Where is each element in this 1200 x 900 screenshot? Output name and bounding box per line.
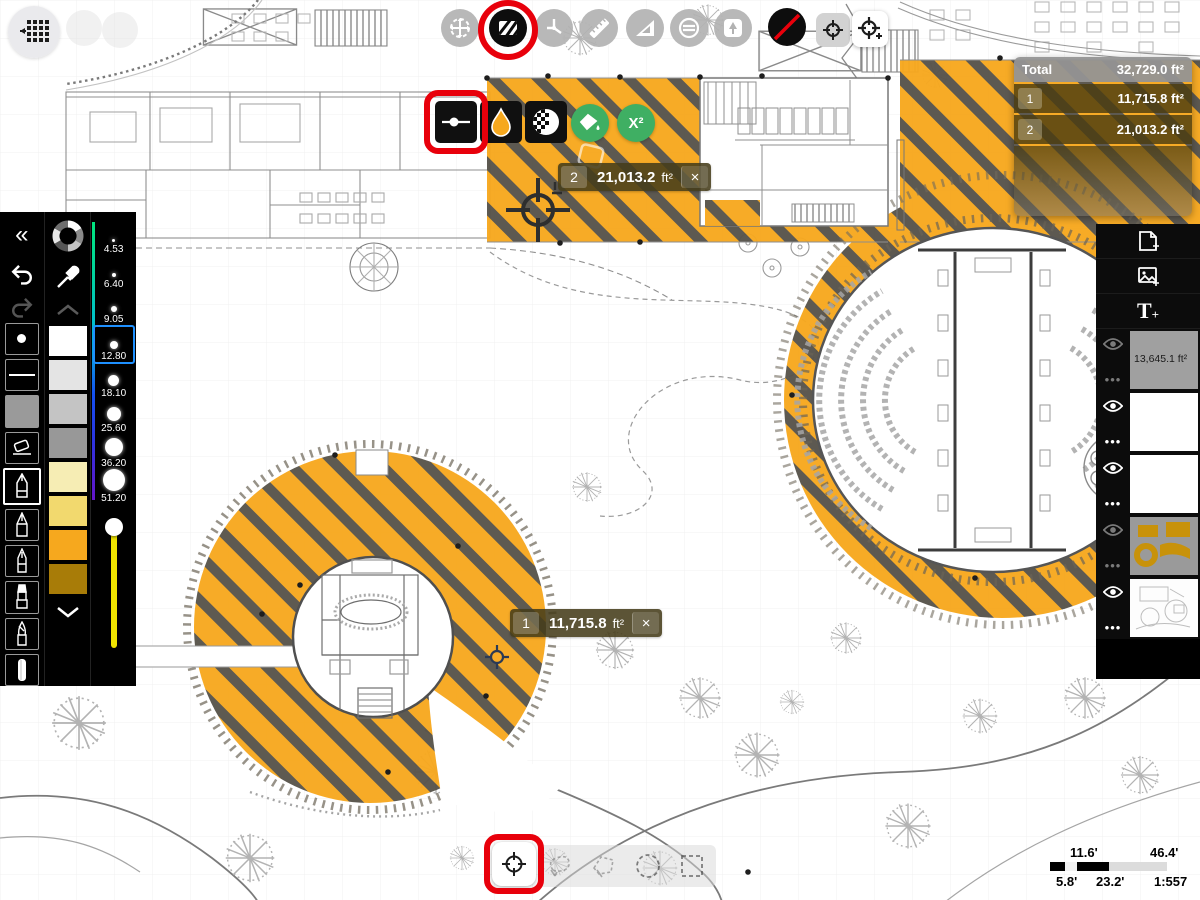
color-swatch-amber[interactable] [49, 530, 87, 560]
circle-select-button[interactable] [626, 845, 670, 887]
scale-label-bottom-mid: 23.2' [1096, 874, 1124, 889]
brush-panel: « [0, 212, 136, 686]
layer-1-options-icon[interactable]: ••• [1105, 377, 1122, 383]
tool-eraser[interactable] [5, 432, 39, 464]
totals-row-1[interactable]: 1 11,715.8 ft² [1014, 84, 1192, 113]
layers-panel-footer [1096, 639, 1200, 679]
brush-size-12-80-selected[interactable]: 12.80 [93, 325, 135, 364]
layer-4-sketch [1130, 517, 1196, 575]
tool-marker[interactable] [5, 581, 39, 613]
measurement-label-1[interactable]: 1 11,715.8 ft² × [510, 609, 662, 637]
fine-pen-icon [14, 548, 30, 574]
move-tool-button[interactable] [441, 9, 479, 47]
layer-5-visibility-icon[interactable] [1103, 585, 1123, 599]
label-1-value: 11,715.8 [543, 615, 613, 632]
fill-bucket-icon [578, 112, 602, 134]
polyline-lasso-button[interactable] [582, 845, 626, 887]
label-2-badge: 2 [561, 166, 587, 188]
tool-pen-selected[interactable] [3, 468, 41, 505]
color-swatch-lightgray[interactable] [49, 360, 87, 390]
brush-size-6-40[interactable]: 6.40 [95, 255, 133, 290]
layer-5-thumbnail[interactable] [1130, 579, 1198, 637]
layer-1-area-label: 13,645.1 ft² [1134, 353, 1187, 365]
tree-stamp-tool-button[interactable] [714, 9, 752, 47]
stencil-tool-icon [677, 16, 701, 40]
stroke-weight-button[interactable] [435, 101, 477, 143]
set-square-tool-button[interactable] [626, 9, 664, 47]
new-page-button[interactable] [1096, 224, 1200, 259]
brush-size-18-10[interactable]: 18.10 [95, 364, 133, 399]
layer-3-options-icon[interactable]: ••• [1105, 501, 1122, 507]
tree-stamp-tool-icon [721, 16, 745, 40]
tool-pencil[interactable] [5, 509, 39, 541]
layer-2-thumbnail[interactable] [1130, 393, 1198, 451]
add-text-button[interactable]: T+ [1096, 294, 1200, 329]
eraser-icon [11, 438, 33, 458]
opacity-slider[interactable] [104, 518, 124, 653]
new-page-icon [1136, 229, 1160, 253]
apps-grid-icon [19, 19, 49, 45]
color-swatch-darkgray[interactable] [49, 428, 87, 458]
eyedropper-button[interactable] [55, 264, 81, 290]
brush-size-9-05[interactable]: 9.05 [95, 290, 133, 325]
redo-button[interactable] [9, 295, 35, 318]
color-swatch-paleyellow[interactable] [49, 462, 87, 492]
tool-fine-pen[interactable] [5, 545, 39, 577]
rectangle-select-icon [678, 852, 706, 880]
selection-toolbar [538, 845, 716, 887]
label-2-unit: ft² [661, 170, 681, 185]
tool-gray-fill[interactable] [5, 395, 39, 427]
ruler-tool-icon [586, 15, 612, 41]
area-calc-label: X² [629, 115, 644, 132]
tool-brush[interactable] [5, 618, 39, 650]
crosshair-select-button[interactable] [492, 842, 536, 886]
crosshair-select-icon [500, 850, 528, 878]
pen-icon [13, 473, 31, 499]
scale-bar [1050, 862, 1167, 871]
pencil-icon [14, 512, 30, 538]
measurement-label-2[interactable]: 2 21,013.2 ft² × [558, 163, 711, 191]
brush-size-4-53[interactable]: 4.53 [95, 220, 133, 255]
color-droplet-button[interactable] [480, 101, 522, 143]
layer-5-sketch [1130, 579, 1196, 637]
set-square-tool-icon [633, 16, 657, 40]
scale-ratio: 1:557 [1154, 874, 1187, 889]
totals-panel-spacer [1014, 146, 1192, 216]
add-image-button[interactable] [1096, 259, 1200, 294]
add-image-icon [1136, 264, 1160, 288]
freehand-lasso-icon [545, 852, 575, 880]
tool-paint-stick[interactable] [5, 654, 39, 686]
stencil-tool-button[interactable] [670, 9, 708, 47]
protractor-tool-button[interactable] [535, 9, 573, 47]
label-2-close-button[interactable]: × [681, 166, 708, 188]
polyline-lasso-icon [589, 852, 619, 880]
layer-row-5[interactable]: ••• [1096, 577, 1200, 639]
tool-dot-brush[interactable] [5, 323, 39, 355]
no-color-tool-button[interactable] [768, 8, 806, 46]
add-text-icon: T [1137, 298, 1152, 324]
label-2-value: 21,013.2 [591, 169, 661, 186]
layers-panel: T+ ••• 13,645.1 ft² ••• ••• ••• [1096, 224, 1200, 679]
opacity-slider-track [111, 528, 117, 648]
layer-row-4[interactable]: ••• [1096, 515, 1200, 577]
color-swatch-white[interactable] [49, 326, 87, 356]
layer-5-options-icon[interactable]: ••• [1105, 625, 1122, 631]
ghost-tool-button[interactable] [66, 10, 102, 46]
tool-line-brush[interactable] [5, 359, 39, 391]
swatches-scroll-down-button[interactable] [56, 606, 80, 618]
texture-opacity-icon [531, 107, 561, 137]
move-tool-icon [448, 16, 472, 40]
paint-stick-icon [15, 657, 29, 683]
totals-row-2-badge: 2 [1018, 119, 1042, 140]
layer-1-thumbnail[interactable]: 13,645.1 ft² [1130, 331, 1198, 389]
area-marker-button[interactable] [816, 13, 850, 47]
layer-4-visibility-icon[interactable] [1103, 523, 1123, 537]
totals-title: Total [1022, 62, 1052, 77]
scale-widget: 11.6' 46.4' 5.8' 23.2' 1:557 [1048, 845, 1198, 891]
protractor-tool-icon [542, 16, 566, 40]
layer-row-2[interactable]: ••• [1096, 391, 1200, 453]
layer-row-3[interactable]: ••• [1096, 453, 1200, 515]
layer-4-thumbnail[interactable] [1130, 517, 1198, 575]
totals-row-1-value: 11,715.8 ft² [1118, 91, 1193, 106]
color-swatch-gold[interactable] [49, 564, 87, 594]
totals-panel: Total 32,729.0 ft² 1 11,715.8 ft² 2 21,0… [1014, 57, 1192, 216]
layer-1-visibility-icon[interactable] [1103, 337, 1123, 351]
totals-row-2[interactable]: 2 21,013.2 ft² [1014, 115, 1192, 144]
app-window: X² 2 21,013.2 ft² × 1 11,715.8 ft² × Tot… [0, 0, 1200, 900]
area-marker-icon [821, 18, 845, 42]
collapse-panel-button[interactable]: « [15, 220, 28, 250]
area-marker-add-button[interactable] [852, 11, 888, 47]
totals-row-2-value: 21,013.2 ft² [1117, 122, 1192, 137]
fill-bucket-button[interactable] [571, 104, 609, 142]
stroke-weight-icon [441, 115, 471, 129]
area-calc-button[interactable]: X² [617, 104, 655, 142]
layer-row-1[interactable]: ••• 13,645.1 ft² [1096, 329, 1200, 391]
totals-value: 32,729.0 ft² [1117, 62, 1184, 77]
label-1-close-button[interactable]: × [632, 612, 659, 634]
no-color-tool-icon [768, 8, 806, 46]
brush-size-36-20[interactable]: 36.20 [95, 434, 133, 469]
label-1-unit: ft² [613, 616, 633, 631]
scale-label-top-left: 11.6' [1070, 845, 1098, 860]
swatches-scroll-up-button[interactable] [56, 304, 80, 316]
layer-4-options-icon[interactable]: ••• [1105, 563, 1122, 569]
texture-opacity-button[interactable] [525, 101, 567, 143]
brush-size-51-20[interactable]: 51.20 [95, 469, 133, 504]
color-swatch-gray[interactable] [49, 394, 87, 424]
freehand-lasso-button[interactable] [538, 845, 582, 887]
undo-button[interactable] [9, 262, 35, 285]
hatch-fill-tool-button[interactable] [489, 9, 527, 47]
layer-2-visibility-icon[interactable] [1103, 399, 1123, 413]
scale-label-top-right: 46.4' [1150, 845, 1178, 860]
hatch-fill-tool-icon [497, 17, 519, 39]
apps-grid-button[interactable] [8, 6, 60, 58]
brush-icon [14, 621, 30, 647]
label-1-badge: 1 [513, 612, 539, 634]
rectangle-select-button[interactable] [670, 845, 714, 887]
color-swatch-yellow[interactable] [49, 496, 87, 526]
layer-2-options-icon[interactable]: ••• [1105, 439, 1122, 445]
layer-3-thumbnail[interactable] [1130, 455, 1198, 513]
ruler-tool-button[interactable] [580, 9, 618, 47]
totals-row-1-badge: 1 [1018, 88, 1042, 109]
circle-select-icon [634, 852, 662, 880]
layer-3-visibility-icon[interactable] [1103, 461, 1123, 475]
color-wheel-button[interactable] [52, 220, 84, 252]
scale-label-bottom-left: 5.8' [1056, 874, 1077, 889]
opacity-slider-knob[interactable] [105, 518, 123, 536]
color-droplet-icon [488, 107, 514, 137]
marker-icon [14, 584, 30, 610]
brush-size-25-60[interactable]: 25.60 [95, 399, 133, 434]
ghost-tool-button-2[interactable] [102, 12, 138, 48]
service-block [700, 78, 888, 226]
area-marker-add-icon [856, 15, 884, 43]
